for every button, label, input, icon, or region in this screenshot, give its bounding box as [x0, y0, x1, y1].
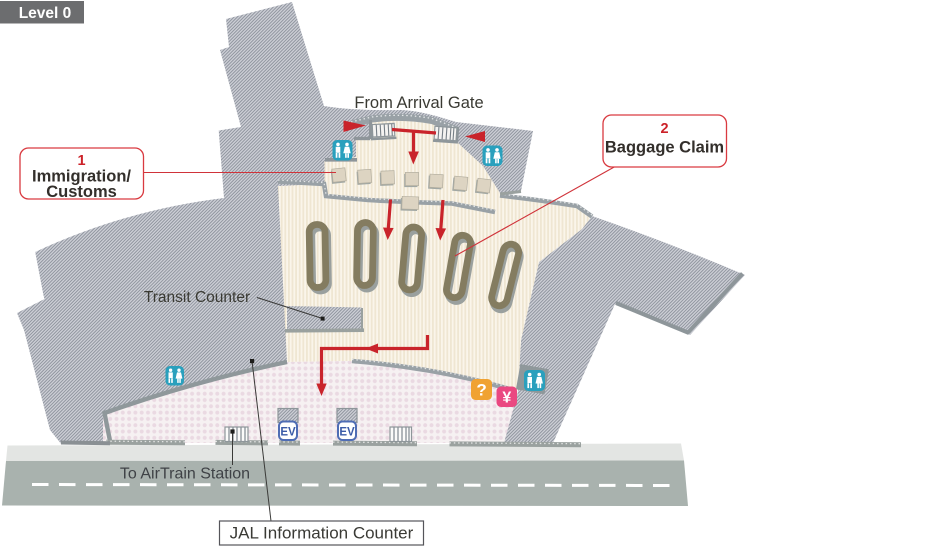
- svg-text:Level 0: Level 0: [19, 5, 72, 22]
- svg-text:2: 2: [660, 121, 668, 137]
- svg-text:Customs: Customs: [46, 183, 117, 201]
- svg-text:To AirTrain Station: To AirTrain Station: [120, 466, 250, 483]
- svg-text:JAL Information Counter: JAL Information Counter: [230, 524, 414, 543]
- svg-text:EV: EV: [280, 427, 296, 439]
- svg-text:Transit Counter: Transit Counter: [144, 289, 250, 306]
- svg-text:Baggage Claim: Baggage Claim: [605, 139, 724, 157]
- svg-text:EV: EV: [339, 427, 355, 439]
- svg-text:From Arrival Gate: From Arrival Gate: [354, 94, 483, 112]
- svg-text:?: ?: [476, 381, 486, 400]
- svg-text:¥: ¥: [502, 390, 511, 407]
